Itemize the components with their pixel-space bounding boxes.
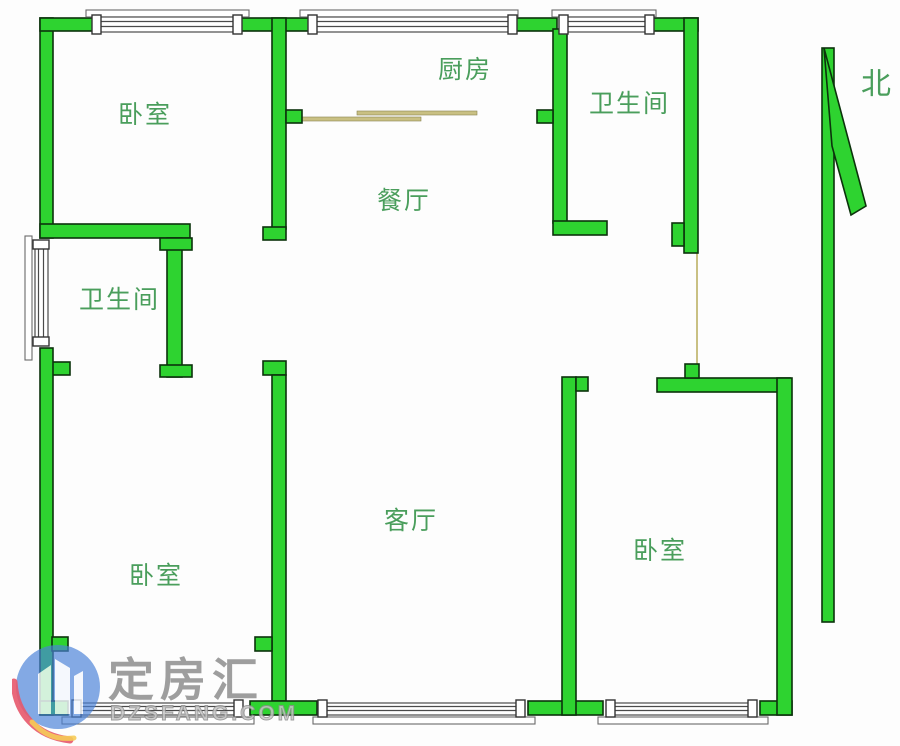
floor-plan: 卧室 厨房 卫生间 餐厅 卫生间 客厅 卧室 卧室 北 定房汇 DZSFANG.…	[0, 0, 900, 746]
window-symbol	[552, 10, 656, 34]
watermark: 定房汇 DZSFANG.COM	[8, 634, 308, 742]
room-label-bathroom-top-right: 卫生间	[589, 84, 670, 120]
window-symbol	[25, 236, 49, 360]
north-arrow-icon	[822, 48, 866, 622]
room-label-living-room: 客厅	[384, 501, 438, 537]
window-symbol	[86, 10, 249, 34]
room-label-dining-room: 餐厅	[377, 181, 431, 217]
room-label-bedroom-bottom-right: 卧室	[633, 531, 687, 567]
window-symbol	[313, 700, 535, 724]
room-label-bedroom-bottom-left: 卧室	[129, 556, 183, 592]
watermark-logo-icon	[12, 642, 108, 744]
sliding-door-symbol	[300, 111, 477, 121]
room-label-bathroom-left: 卫生间	[79, 280, 160, 316]
watermark-domain-text: DZSFANG.COM	[110, 702, 298, 726]
watermark-brand-text: 定房汇	[108, 644, 264, 710]
window-symbol	[598, 700, 768, 724]
room-label-kitchen: 厨房	[438, 50, 492, 86]
north-label: 北	[861, 59, 891, 103]
window-symbol	[300, 10, 518, 34]
room-label-bedroom-top-left: 卧室	[118, 95, 172, 131]
